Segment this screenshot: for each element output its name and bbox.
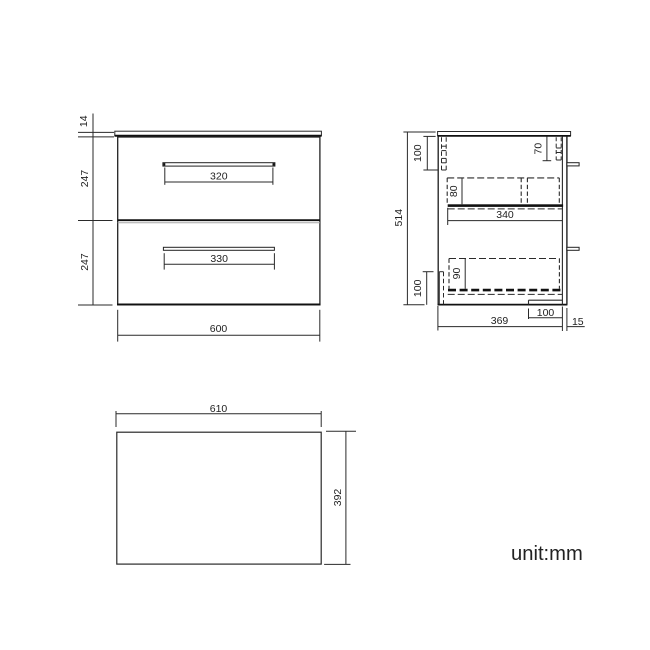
svg-text:90: 90 (451, 268, 463, 280)
svg-text:369: 369 (491, 315, 509, 327)
svg-text:330: 330 (210, 253, 228, 265)
svg-text:340: 340 (496, 209, 514, 221)
svg-text:600: 600 (210, 323, 228, 335)
svg-text:320: 320 (210, 171, 228, 183)
svg-text:610: 610 (210, 403, 228, 415)
svg-text:100: 100 (412, 144, 424, 162)
svg-text:unit:mm: unit:mm (511, 543, 583, 565)
svg-text:514: 514 (393, 209, 405, 227)
svg-text:15: 15 (572, 316, 584, 328)
svg-text:247: 247 (79, 253, 91, 271)
svg-text:70: 70 (533, 143, 545, 155)
svg-text:100: 100 (537, 307, 555, 319)
svg-text:392: 392 (332, 489, 344, 507)
svg-text:247: 247 (79, 170, 91, 188)
svg-text:14: 14 (78, 115, 90, 127)
svg-text:100: 100 (412, 279, 424, 297)
svg-text:80: 80 (448, 185, 460, 197)
